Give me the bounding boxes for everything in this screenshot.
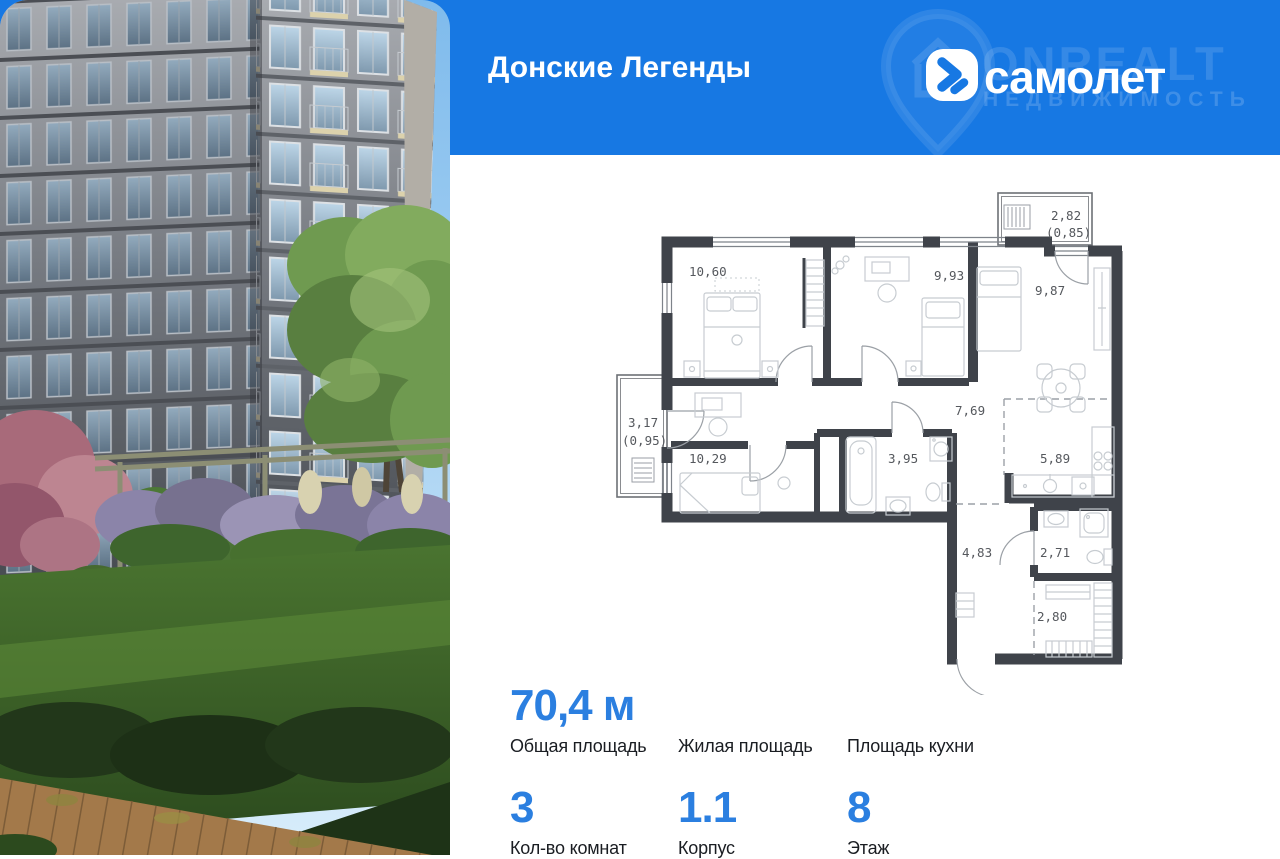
- stat-kitchen-area: Площадь кухни: [847, 684, 974, 757]
- stat-rooms-count: 3 Кол-во комнат: [510, 786, 627, 859]
- room-area-coef-label: (0,85): [1046, 225, 1091, 240]
- shoe-cabinet-icon: [956, 593, 974, 617]
- wc-sink-icon: [1044, 511, 1068, 527]
- project-title: Донские Легенды: [488, 51, 751, 85]
- radiator-icon: [1004, 205, 1030, 229]
- stat-label: Жилая площадь: [678, 736, 813, 757]
- stat-building: 1.1 Корпус: [678, 786, 736, 859]
- stat-total-area: 70,4 м Общая площадь: [510, 684, 646, 757]
- stat-label: Общая площадь: [510, 736, 646, 757]
- room-area-coef-label: (0,95): [622, 433, 667, 448]
- stat-value: [678, 684, 813, 730]
- wc-toilet-icon: [1087, 549, 1112, 565]
- double-bed-icon: [684, 278, 778, 378]
- room-area-label: 10,60: [689, 264, 727, 279]
- stat-value: 3: [510, 786, 627, 832]
- project-header: ONREALT НЕДВИЖИМОСТЬ Донские Легенды сам…: [450, 0, 1280, 155]
- desk-icon: [832, 256, 909, 302]
- room-area-label: 7,69: [955, 403, 985, 418]
- samolet-logo-icon: [926, 49, 978, 101]
- bed3-icon: [680, 473, 790, 513]
- room-area-label: 3,17: [628, 415, 658, 430]
- sofa-bed-icon: [977, 267, 1021, 351]
- toilet-icon: [926, 483, 950, 501]
- desk-nook-icon: [695, 393, 741, 436]
- stat-label: Кол-во комнат: [510, 838, 627, 859]
- stat-value: 70,4 м: [510, 684, 646, 730]
- stat-value: 8: [847, 786, 889, 832]
- stat-floor: 8 Этаж: [847, 786, 889, 859]
- closet-shelves-icon: [806, 260, 824, 326]
- radiator-icon: [632, 458, 654, 482]
- stat-label: Корпус: [678, 838, 736, 859]
- stat-label: Площадь кухни: [847, 736, 974, 757]
- samolet-wordmark: самолет: [984, 50, 1165, 104]
- stat-label: Этаж: [847, 838, 889, 859]
- room-area-label: 2,80: [1037, 609, 1067, 624]
- room-area-label: 9,87: [1035, 283, 1065, 298]
- room-area-label: 9,93: [934, 268, 964, 283]
- room-area-label: 3,95: [888, 451, 918, 466]
- dining-table-icon: [1037, 364, 1085, 412]
- stat-living-area: Жилая площадь: [678, 684, 813, 757]
- room-area-label: 5,89: [1040, 451, 1070, 466]
- shower-icon: [1080, 509, 1108, 537]
- floor-plan: 10,60 9,93 9,87 2,82 (0,85) 7,69 3,17 (0…: [600, 175, 1140, 695]
- bathtub-icon: [846, 437, 876, 513]
- room-area-label: 10,29: [689, 451, 727, 466]
- room-area-label: 2,71: [1040, 545, 1070, 560]
- radiator-shelf-icon: [1094, 268, 1110, 350]
- room-area-label: 4,83: [962, 545, 992, 560]
- single-bed-icon: [906, 298, 964, 376]
- room-area-label: 2,82: [1051, 208, 1081, 223]
- stat-value: [847, 684, 974, 730]
- building-photo: [0, 0, 450, 855]
- stat-value: 1.1: [678, 786, 736, 832]
